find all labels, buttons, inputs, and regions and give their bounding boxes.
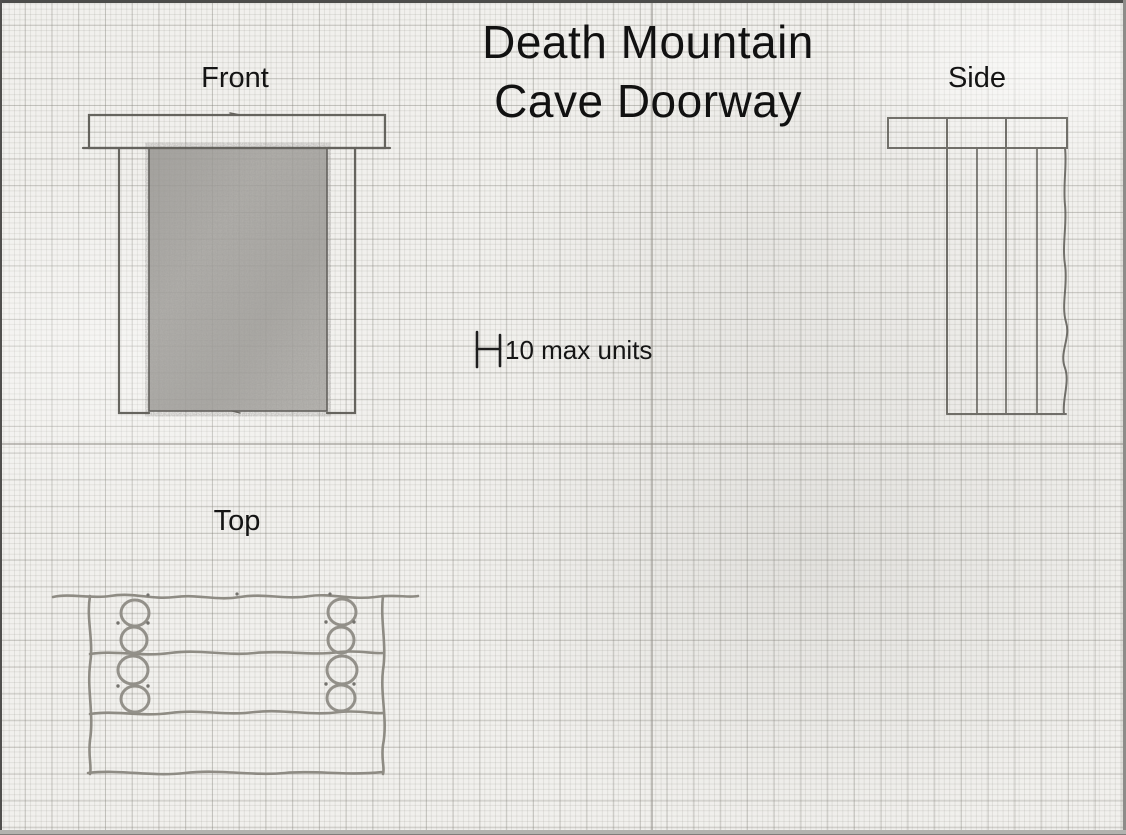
top-view-drawing xyxy=(53,592,418,774)
front-right-post xyxy=(327,148,355,413)
top-view-right-edge xyxy=(382,596,384,774)
scale-label: 10 max units xyxy=(505,335,652,366)
top-view-top-edge-line xyxy=(53,595,418,598)
top-view-pencil-dots xyxy=(116,592,355,687)
front-left-post xyxy=(119,148,149,413)
page-edge-left xyxy=(0,0,2,835)
page-title: Death Mountain Cave Doorway xyxy=(388,13,908,131)
side-lintel xyxy=(888,118,1067,148)
front-lintel xyxy=(89,115,385,148)
front-view-label: Front xyxy=(160,62,310,95)
doorway-shaded-opening xyxy=(149,148,327,411)
side-view-drawing xyxy=(888,118,1067,414)
scale-bracket xyxy=(477,332,500,367)
top-view-bottom-edge-line xyxy=(88,772,383,774)
graph-paper-sheet: Death Mountain Cave Doorway Front Side T… xyxy=(0,0,1126,835)
page-title-line-2: Cave Doorway xyxy=(388,72,908,131)
top-view-right-ring-column xyxy=(327,599,357,711)
page-title-line-1: Death Mountain xyxy=(388,13,908,72)
side-view-label: Side xyxy=(902,62,1052,95)
top-view-left-ring-column xyxy=(118,600,149,712)
top-view-label: Top xyxy=(162,505,312,538)
page-edge-top xyxy=(0,0,1126,3)
page-edge-bottom xyxy=(0,830,1126,835)
top-view-left-edge xyxy=(89,596,91,774)
front-view-drawing xyxy=(83,113,390,413)
side-post-rough-right-edge xyxy=(1063,148,1067,414)
